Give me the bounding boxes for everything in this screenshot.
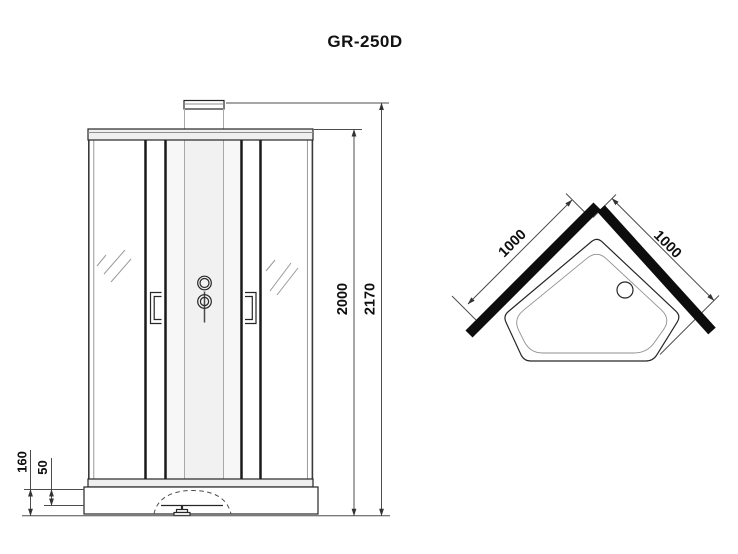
front-view: 160 50 2000 2170 xyxy=(15,101,391,516)
glass-hatch-right xyxy=(266,260,298,295)
bottom-rail xyxy=(88,479,313,487)
dimension-label-tray-height: 160 xyxy=(15,451,30,473)
top-view: 1000 1000 xyxy=(452,194,719,362)
drain-hole xyxy=(617,282,633,298)
glass-hatch-left xyxy=(97,250,131,282)
technical-drawing-canvas: GR-250D xyxy=(0,0,738,554)
left-door-handle xyxy=(151,293,162,324)
dimension-label-right-side: 1000 xyxy=(650,228,684,262)
back-wall-left xyxy=(469,206,597,334)
dim-group-left: 160 50 xyxy=(15,450,85,516)
dimension-label-left-side: 1000 xyxy=(496,227,530,261)
tray-outer-outline xyxy=(505,239,679,361)
drawing-svg: 160 50 2000 2170 xyxy=(0,0,738,554)
dimension-label-cabin-height: 2000 xyxy=(335,283,351,315)
dimension-label-tray-depth: 50 xyxy=(35,460,50,474)
dimension-label-total-height: 2170 xyxy=(363,283,379,315)
top-vent-box xyxy=(184,101,224,110)
top-rail xyxy=(88,129,313,140)
right-door-handle xyxy=(245,293,256,324)
